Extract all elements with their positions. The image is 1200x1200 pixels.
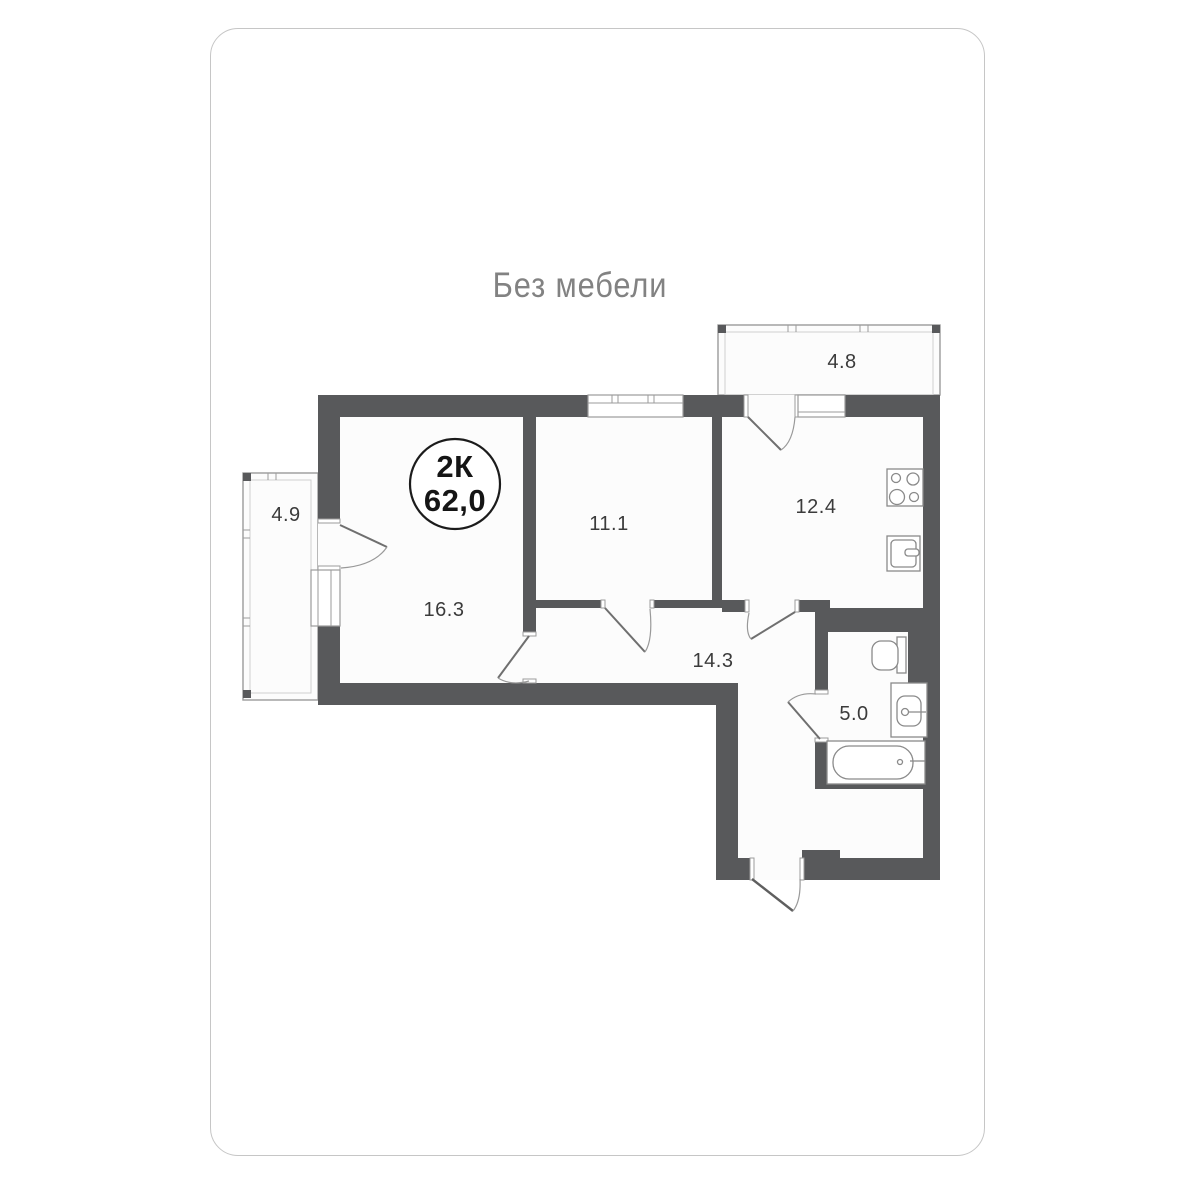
door-jamb [800, 858, 804, 880]
door-jamb [650, 600, 654, 608]
kitchen-window-icon [798, 395, 845, 417]
wall-living-bottom [318, 683, 738, 705]
kitchen-sink-icon [887, 536, 920, 571]
balcony-corner-post [932, 325, 940, 333]
opening-kitchen-balcony [748, 395, 795, 417]
wall-bathroom-left-upper [815, 632, 828, 692]
door-jamb [795, 600, 799, 612]
wall-pipe-chase [908, 630, 923, 687]
badge-area-value: 62,0 [424, 483, 486, 518]
door-jamb [318, 519, 340, 523]
balcony-corner-post [243, 473, 251, 481]
room-label-bedroom: 11.1 [589, 513, 628, 535]
wall-kitchen-partition [712, 417, 722, 608]
door-jamb [744, 395, 748, 417]
balcony-corner-post [718, 325, 726, 333]
wall-bathroom-left-lower [815, 740, 828, 782]
opening-kitchen-door [749, 600, 795, 612]
room-label-balcony-top: 4.8 [827, 351, 856, 373]
bathtub-icon [827, 741, 925, 784]
room-label-balcony-left: 4.9 [271, 504, 300, 526]
wall-corridor-left [716, 683, 738, 880]
bath-sink-icon [891, 683, 927, 737]
screenshot-stage: Без мебели [0, 0, 1200, 1200]
opening-living-balcony [318, 523, 340, 566]
bedroom-window-icon [588, 395, 683, 417]
toilet-icon [872, 637, 906, 673]
room-label-hallway: 14.3 [693, 650, 734, 672]
opening-entrance-door [754, 858, 800, 880]
door-jamb [523, 632, 536, 636]
living-window-icon [311, 570, 340, 626]
opening-bedroom-door [605, 600, 650, 608]
apartment-floor [318, 395, 940, 880]
door-jamb [601, 600, 605, 608]
door-jamb [745, 600, 749, 612]
wall-bottom-step [802, 850, 840, 860]
room-label-kitchen: 12.4 [796, 496, 837, 518]
room-label-bathroom: 5.0 [839, 703, 868, 725]
wall-bathroom-top [815, 608, 923, 632]
door-jamb [750, 858, 754, 880]
door-jamb [815, 738, 828, 742]
area-badge: 2К 62,0 [410, 439, 500, 529]
stove-icon [887, 469, 923, 506]
badge-rooms-count: 2К [436, 449, 473, 484]
room-label-living: 16.3 [424, 599, 465, 621]
floor-plan: 4.8 4.9 16.3 11.1 12.4 14.3 5.0 2К 62,0 [0, 0, 1200, 1200]
wall-living-bedroom [523, 417, 536, 636]
balcony-corner-post [243, 690, 251, 698]
wall-right [923, 395, 940, 880]
opening-bathroom-door [815, 694, 828, 738]
entrance-door-icon [752, 879, 800, 911]
door-jamb [815, 690, 828, 694]
